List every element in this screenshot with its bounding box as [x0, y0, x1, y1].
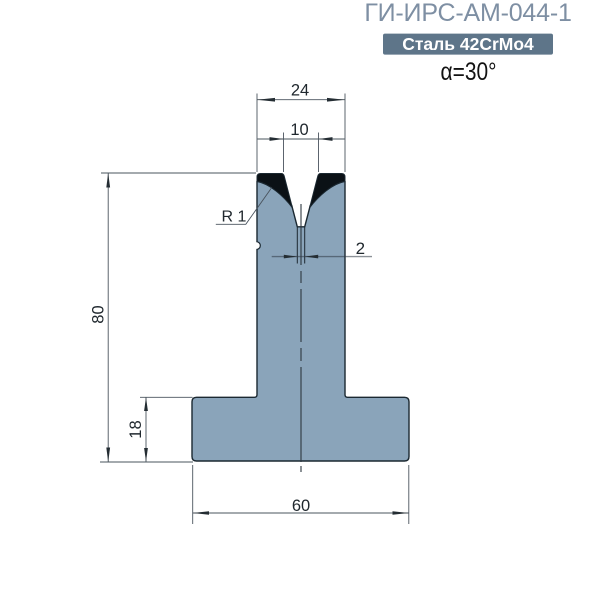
svg-text:80: 80: [90, 305, 108, 323]
svg-text:Сталь 42CrMo4: Сталь 42CrMo4: [402, 34, 534, 54]
svg-text:60: 60: [292, 497, 310, 515]
svg-text:ГИ-ИРС-АМ-044-1: ГИ-ИРС-АМ-044-1: [364, 0, 571, 27]
svg-text:10: 10: [290, 121, 308, 139]
svg-text:2: 2: [356, 239, 365, 258]
svg-text:R 1: R 1: [222, 209, 247, 226]
svg-text:24: 24: [291, 82, 309, 100]
svg-text:α=30°: α=30°: [441, 58, 497, 86]
svg-text:18: 18: [127, 420, 145, 438]
